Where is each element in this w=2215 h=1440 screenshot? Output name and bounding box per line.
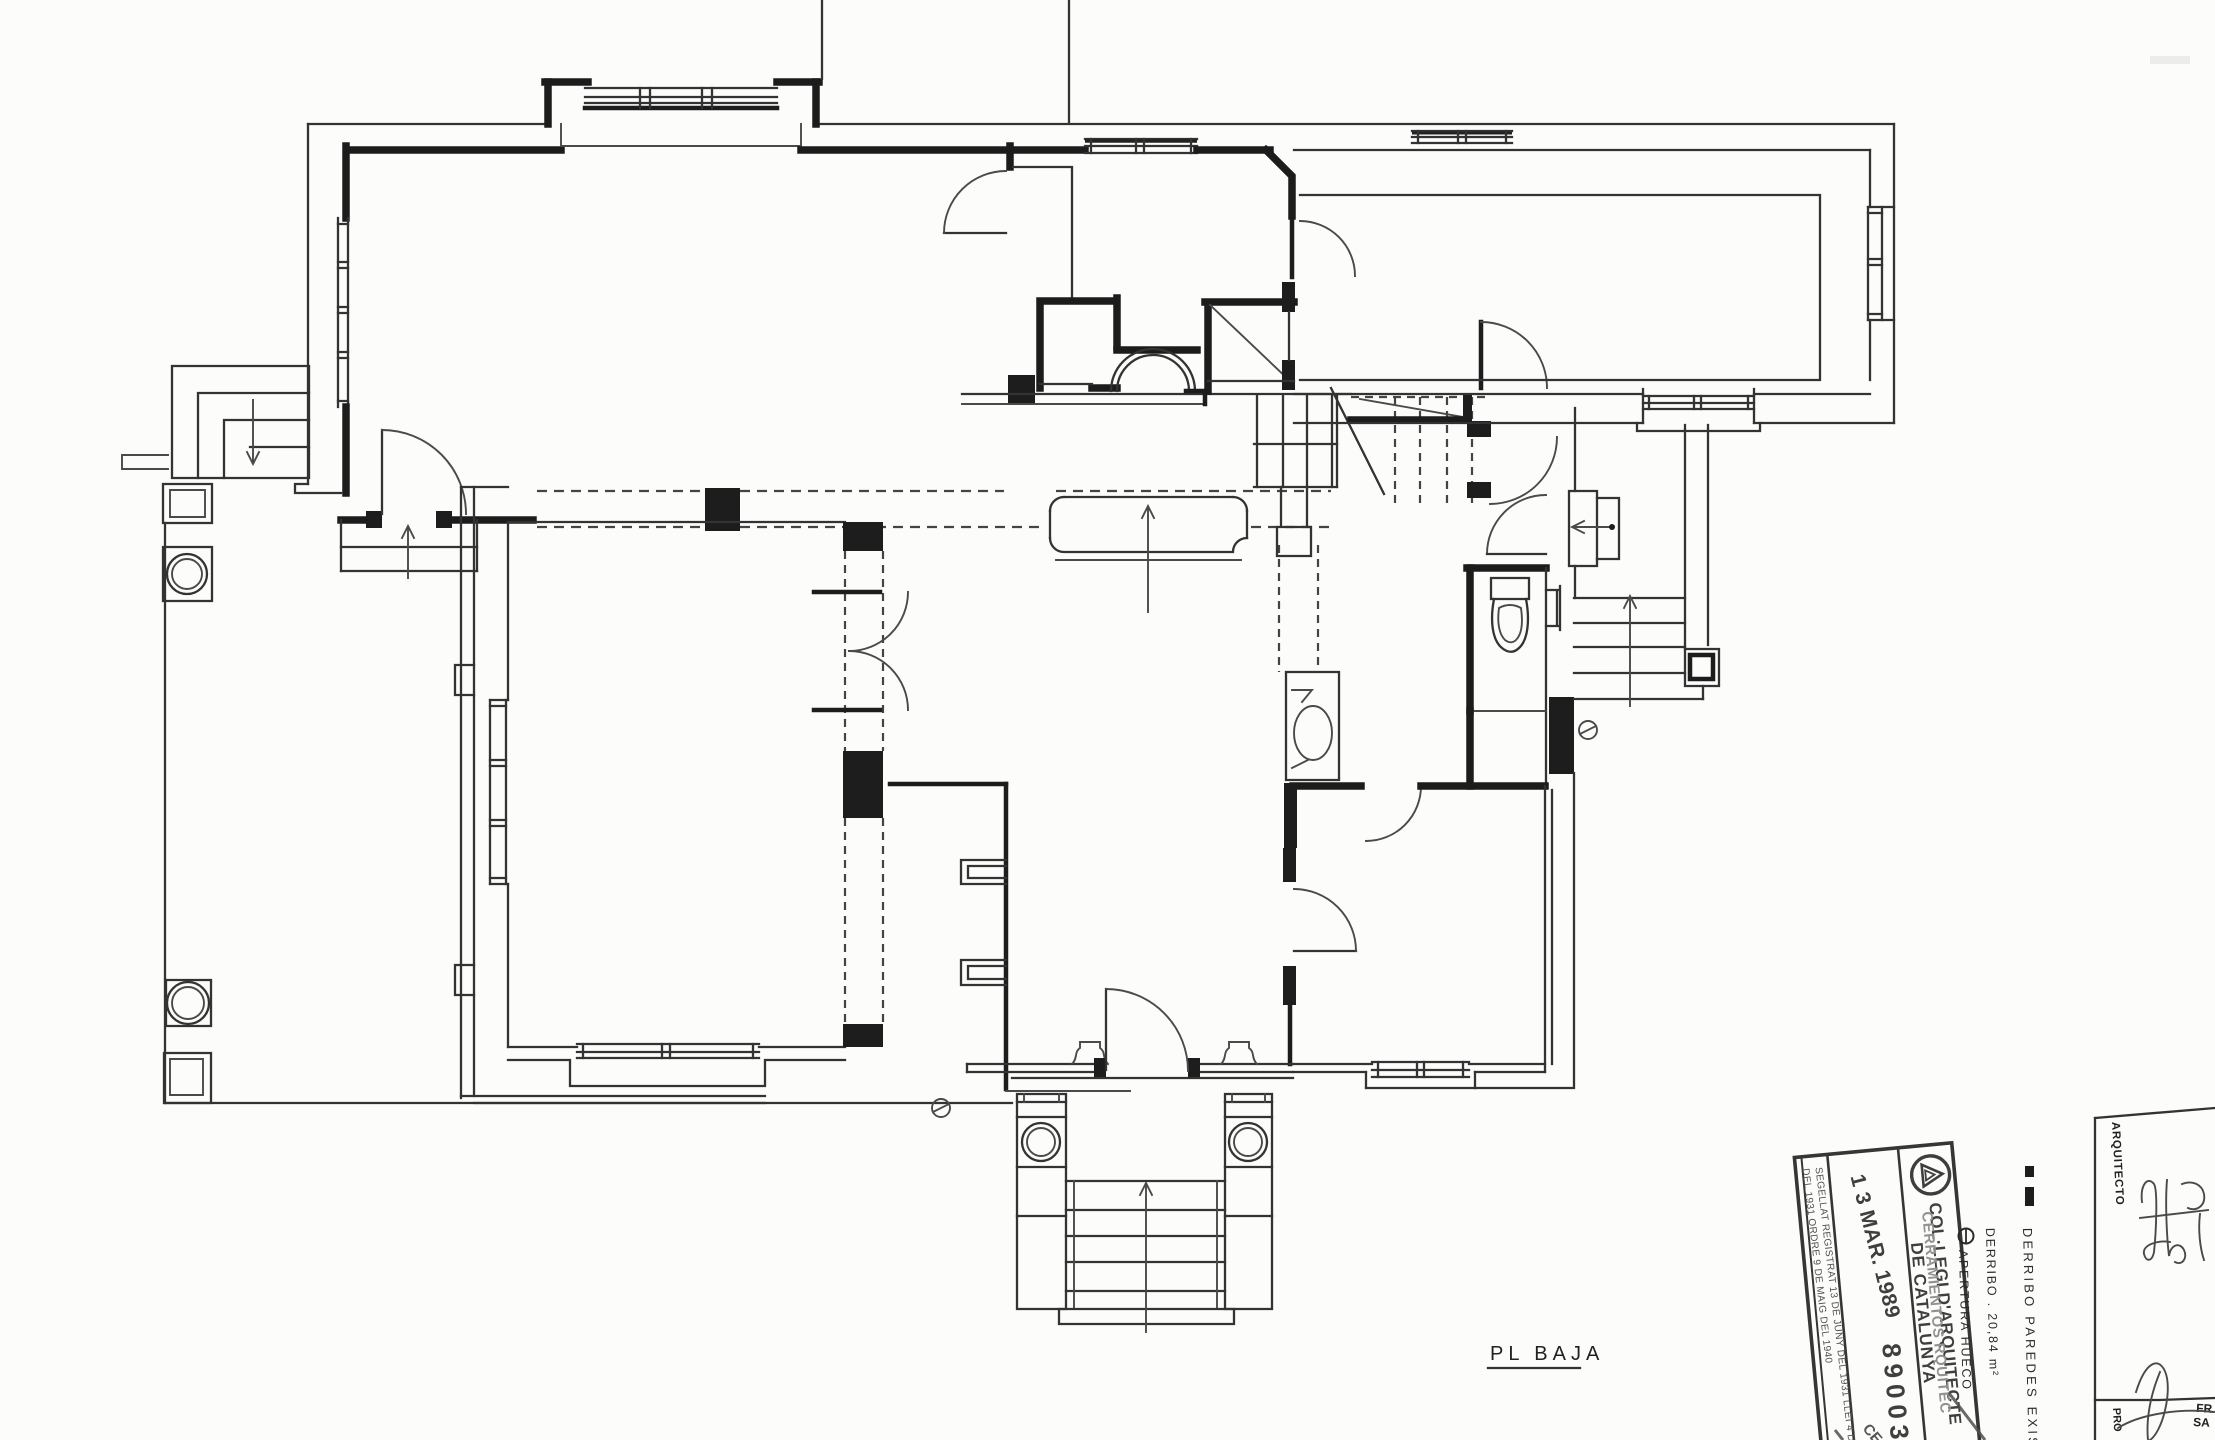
svg-text:PRO: PRO <box>2110 1408 2123 1433</box>
svg-text:PL BAJA: PL BAJA <box>1490 1343 1604 1365</box>
svg-text:SA: SA <box>2193 1415 2211 1430</box>
svg-text:FR: FR <box>2196 1401 2213 1416</box>
